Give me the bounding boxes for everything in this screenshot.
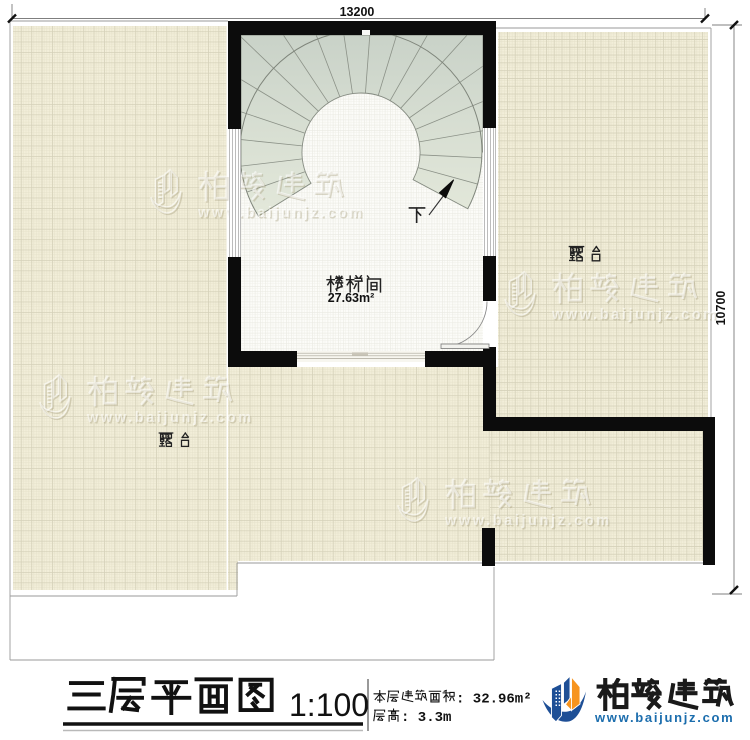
svg-text:www.baijunjz.com: www.baijunjz.com — [197, 205, 365, 221]
svg-text:www.baijunjz.com: www.baijunjz.com — [444, 513, 612, 529]
svg-text:27.63m²: 27.63m² — [328, 291, 375, 305]
svg-text:www.baijunjz.com: www.baijunjz.com — [86, 410, 254, 426]
svg-text:13200: 13200 — [340, 5, 375, 19]
svg-text:: 3.3m: : 3.3m — [401, 710, 451, 726]
svg-text:10700: 10700 — [714, 291, 728, 326]
svg-text:www.baijunjz.com: www.baijunjz.com — [594, 710, 734, 725]
svg-text:: 32.96m²: : 32.96m² — [456, 692, 532, 708]
svg-text:www.baijunjz.com: www.baijunjz.com — [551, 307, 719, 323]
svg-text:1:100: 1:100 — [289, 687, 369, 723]
